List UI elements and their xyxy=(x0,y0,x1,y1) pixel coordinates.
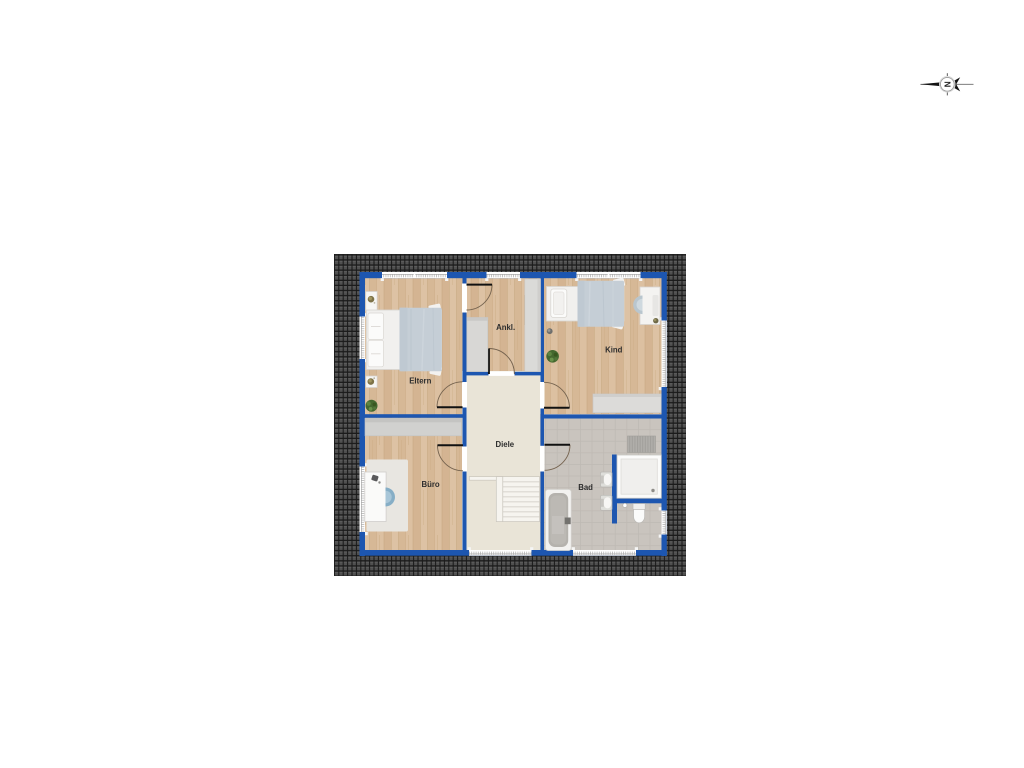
svg-text:Bad: Bad xyxy=(578,483,593,492)
svg-text:N: N xyxy=(943,81,953,87)
svg-text:Büro: Büro xyxy=(421,480,439,489)
svg-text:Diele: Diele xyxy=(495,440,514,449)
svg-text:Kind: Kind xyxy=(605,346,623,355)
svg-text:Ankl.: Ankl. xyxy=(496,323,515,332)
svg-text:Eltern: Eltern xyxy=(409,376,431,385)
